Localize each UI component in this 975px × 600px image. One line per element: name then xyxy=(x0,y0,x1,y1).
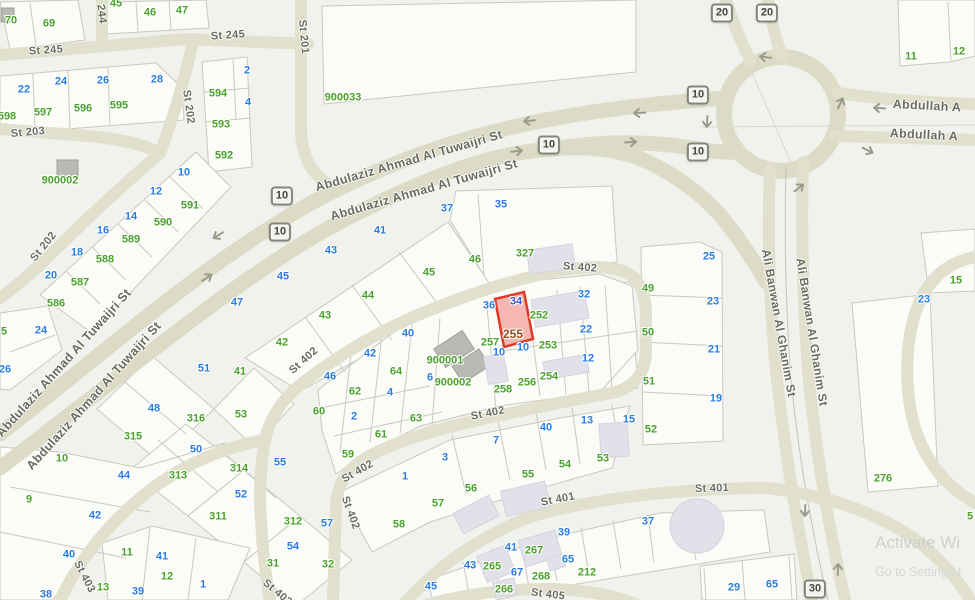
parcel-label: 57 xyxy=(321,519,333,530)
parcel-label: 44 xyxy=(118,471,130,482)
parcel-label: 36 xyxy=(483,301,495,312)
parcel-label: 12 xyxy=(582,354,594,365)
parcel-label: 43 xyxy=(319,311,331,322)
parcel-label: 592 xyxy=(215,151,233,162)
street-name-label: St 201 xyxy=(296,19,310,54)
parcel-label: 1 xyxy=(200,580,206,591)
parcel-label: 46 xyxy=(469,255,481,266)
parcel-label: 57 xyxy=(432,499,444,510)
parcel-label: 16 xyxy=(97,226,109,237)
parcel-label: 45 xyxy=(425,582,437,593)
parcel-label: 56 xyxy=(465,484,477,495)
parcel-label: 67 xyxy=(511,568,523,579)
parcel-label: 1 xyxy=(402,472,408,483)
parcel-label: 588 xyxy=(96,255,114,266)
parcel-label: 7 xyxy=(493,436,499,447)
parcel-label: 65 xyxy=(562,555,574,566)
route-shield: 20 xyxy=(756,4,778,23)
parcel-label: 45 xyxy=(423,268,435,279)
parcel-label: 312 xyxy=(284,517,302,528)
parcel-label: 50 xyxy=(190,445,202,456)
parcel-label: 255 xyxy=(503,328,523,340)
parcel-label: 327 xyxy=(516,249,534,260)
parcel-label: 2 xyxy=(351,412,357,423)
parcel-label: 69 xyxy=(43,19,55,30)
parcel-label: 15 xyxy=(623,415,635,426)
parcel-label: 23 xyxy=(918,295,930,306)
parcel-label: 28 xyxy=(151,75,163,86)
parcel-label: 46 xyxy=(144,8,156,19)
parcel-label: 212 xyxy=(578,568,596,579)
parcel-label: 276 xyxy=(874,474,892,485)
parcel-label: 265 xyxy=(483,562,501,573)
parcel-label: 253 xyxy=(539,341,557,352)
parcel-label: 40 xyxy=(540,423,552,434)
parcel-label: 10 xyxy=(517,343,529,354)
parcel-label: 268 xyxy=(532,572,550,583)
parcel-label: 35 xyxy=(495,200,507,211)
parcel-label: 590 xyxy=(154,218,172,229)
activate-windows-watermark-subtitle: Go to Settings t xyxy=(875,565,961,579)
parcel-label: 37 xyxy=(441,204,453,215)
parcel-label: 64 xyxy=(390,367,402,378)
direction-arrow-icon xyxy=(703,116,712,127)
parcel-label: 51 xyxy=(198,364,210,375)
direction-arrow-icon xyxy=(874,104,885,113)
parcel-label: 3 xyxy=(442,453,448,464)
parcel-label: 41 xyxy=(505,543,517,554)
route-shield: 10 xyxy=(271,187,293,206)
parcel-label: 594 xyxy=(209,89,227,100)
route-shield: 10 xyxy=(687,86,709,105)
parcel-label: 59 xyxy=(342,450,354,461)
parcel-label: 39 xyxy=(558,528,570,539)
parcel-label: 37 xyxy=(642,517,654,528)
parcel-label: 54 xyxy=(559,460,571,471)
parcel-label: 42 xyxy=(276,338,288,349)
parcel-label: 32 xyxy=(322,560,334,571)
parcel-label: 900033 xyxy=(325,93,362,104)
parcel-label: 267 xyxy=(525,546,543,557)
parcel-label: 11 xyxy=(121,548,133,559)
parcel-label: 19 xyxy=(710,394,722,405)
parcel-label: 41 xyxy=(234,367,246,378)
parcel-label: 595 xyxy=(110,101,128,112)
parcel-label: 900002 xyxy=(42,176,79,187)
parcel-label: 10 xyxy=(56,454,68,465)
parcel-label: 589 xyxy=(122,235,140,246)
parcel-label: 61 xyxy=(375,430,387,441)
parcel-label: 41 xyxy=(374,226,386,237)
parcel-label: 5 xyxy=(1,327,7,338)
parcel-label: 15 xyxy=(950,276,962,287)
parcel-label: 12 xyxy=(953,47,965,58)
parcel-label: 41 xyxy=(156,552,168,563)
parcel-label: 586 xyxy=(47,299,65,310)
parcel-label: 11 xyxy=(905,52,917,63)
parcel-label: 52 xyxy=(645,425,657,436)
parcel-label: 65 xyxy=(766,580,778,591)
parcel-label: 42 xyxy=(89,511,101,522)
parcel-label: 900001 xyxy=(427,356,464,367)
street-name-label: St 405 xyxy=(530,587,565,600)
parcel-label: 48 xyxy=(148,404,160,415)
route-shield: 10 xyxy=(269,223,291,242)
parcel-label: 598 xyxy=(0,112,16,123)
map-canvas[interactable]: 7069454647598597596595222426285945935922… xyxy=(0,0,975,600)
street-name-label: St 402 xyxy=(563,261,598,274)
parcel-label: 10 xyxy=(178,168,190,179)
parcel-label: 258 xyxy=(494,385,512,396)
parcel-label: 39 xyxy=(132,587,144,598)
parcel-label: 50 xyxy=(642,328,654,339)
parcel-label: 38 xyxy=(40,590,52,600)
parcel-label: 49 xyxy=(642,284,654,295)
parcel-label: 256 xyxy=(518,378,536,389)
parcel-label: 53 xyxy=(235,410,247,421)
parcel-label: 70 xyxy=(5,16,17,27)
direction-arrow-icon xyxy=(861,144,874,156)
parcel-label: 596 xyxy=(74,104,92,115)
route-shield: 30 xyxy=(804,580,826,599)
parcel-label: 62 xyxy=(349,387,361,398)
parcel-label: 593 xyxy=(212,120,230,131)
parcel-label: 254 xyxy=(540,372,558,383)
parcel-label: 5 xyxy=(967,512,973,523)
parcel-label: 42 xyxy=(364,349,376,360)
parcel-label: 10 xyxy=(493,348,505,359)
street-name-label: 244 xyxy=(94,4,107,24)
parcel-label: 18 xyxy=(71,248,83,259)
parcel-label: 587 xyxy=(71,278,89,289)
parcel-label: 311 xyxy=(209,512,227,523)
parcel-label: 29 xyxy=(728,583,740,594)
parcel-label: 45 xyxy=(110,0,122,10)
parcel-label: 60 xyxy=(313,407,325,418)
parcel-label: 46 xyxy=(324,372,336,383)
parcel-label: 24 xyxy=(55,77,67,88)
parcel-label: 591 xyxy=(181,201,199,212)
activate-windows-watermark: Activate Wi xyxy=(875,533,960,553)
parcel-label: 20 xyxy=(45,271,57,282)
parcel-label: 252 xyxy=(530,311,548,322)
parcel-label: 40 xyxy=(402,329,414,340)
parcel-label: 12 xyxy=(150,187,162,198)
parcel-label: 26 xyxy=(97,76,109,87)
parcel-label: 26 xyxy=(0,365,11,376)
parcel-label: 14 xyxy=(125,212,137,223)
parcel-label: 23 xyxy=(707,297,719,308)
parcel-label: 34 xyxy=(510,297,522,308)
parcel-label: 43 xyxy=(464,561,476,572)
parcel-label: 52 xyxy=(235,490,247,501)
parcel-label: 53 xyxy=(597,454,609,465)
parcel-label: 40 xyxy=(63,550,75,561)
parcel-label: 55 xyxy=(522,470,534,481)
parcel-label: 55 xyxy=(274,458,286,469)
parcel-label: 22 xyxy=(580,325,592,336)
parcel-label: 900002 xyxy=(435,378,472,389)
parcel-label: 315 xyxy=(124,432,142,443)
parcel-label: 32 xyxy=(578,290,590,301)
parcel-label: 44 xyxy=(362,291,374,302)
street-name-label: St 401 xyxy=(695,483,730,495)
parcel-label: 21 xyxy=(708,345,720,356)
parcel-label: 316 xyxy=(187,414,205,425)
parcel-label: 2 xyxy=(244,66,250,77)
parcel-label: 314 xyxy=(230,464,248,475)
parcel-label: 43 xyxy=(325,246,337,257)
parcel-label: 63 xyxy=(410,414,422,425)
parcel-label: 58 xyxy=(393,520,405,531)
parcel-label: 12 xyxy=(161,572,173,583)
route-shield: 10 xyxy=(687,143,709,162)
parcel-label: 6 xyxy=(427,373,433,384)
parcel-label: 47 xyxy=(176,6,188,17)
parcel-label: 313 xyxy=(169,471,187,482)
parcel-label: 51 xyxy=(643,377,655,388)
parcel-label: 597 xyxy=(34,108,52,119)
parcel-label: 22 xyxy=(18,85,30,96)
direction-arrow-icon xyxy=(211,229,225,242)
parcel-label: 13 xyxy=(581,416,593,427)
parcel-label: 45 xyxy=(277,272,289,283)
parcel-label: 54 xyxy=(287,542,299,553)
parcel-label: 13 xyxy=(97,583,109,594)
route-shield: 20 xyxy=(711,4,733,23)
parcel-label: 31 xyxy=(267,559,279,570)
parcel-label: 24 xyxy=(35,326,47,337)
parcel-label: 9 xyxy=(26,495,32,506)
parcel-label: 4 xyxy=(245,98,251,109)
parcel-label: 25 xyxy=(703,252,715,263)
parcel-label: 47 xyxy=(231,298,243,309)
route-shield: 10 xyxy=(538,136,560,155)
parcel-label: 266 xyxy=(495,585,513,596)
parcel-label: 4 xyxy=(387,388,393,399)
